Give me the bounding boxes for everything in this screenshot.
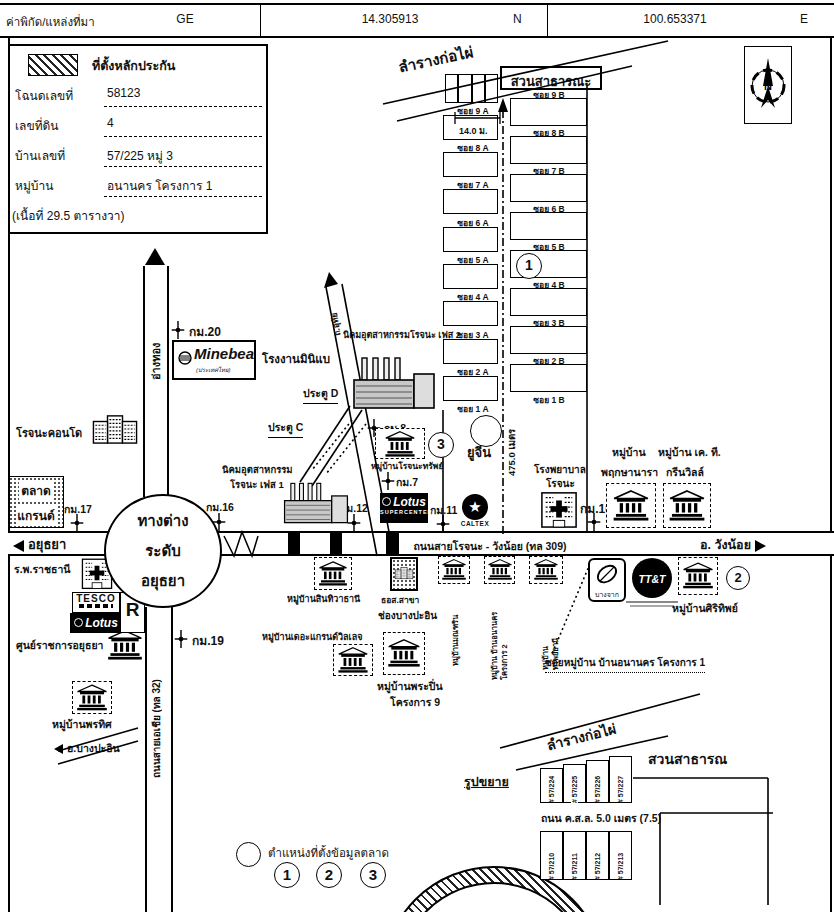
interchange-ellipse: ทางต่าง ระดับ อยุธยา (104, 494, 222, 608)
expand-plot-213: # 57/213 (609, 831, 632, 880)
branch-road-line-1 (58, 728, 138, 751)
lotus-logo-box: Lotus (70, 613, 122, 633)
interchange-line-2: ระดับ (106, 539, 220, 563)
branch-road-line-2 (58, 741, 138, 764)
expand-plot-210-label: # 57/210 (548, 833, 555, 880)
expand-plot-210: # 57/210 (540, 831, 563, 880)
expand-plot-226-label: # 57/226 (594, 762, 601, 803)
km10-marker-icon (587, 513, 601, 531)
rojanasap-bank-icon (382, 431, 418, 457)
ayutthaya-text: อยุธยา (28, 537, 66, 552)
expand-corner-line (660, 813, 773, 905)
angthong-road-label: อ่างทอง (147, 292, 165, 380)
km11-marker-icon (436, 515, 450, 533)
minebea-logo-box: Minebea (ประเทศไทย) (172, 340, 256, 380)
marker-legend-label: ตำแหน่งที่ตั้งข้อมูลตลาด (268, 844, 389, 862)
expand-plot-211-label: # 57/211 (571, 833, 578, 880)
canal-top-line-1 (383, 41, 668, 104)
montharin-bank-icon (441, 559, 467, 580)
ktgreenville-bank-icon (668, 490, 706, 521)
km17-marker-icon (70, 514, 84, 532)
road-pier-2 (330, 533, 342, 554)
wangnoi-direction-label: อ. วังน้อย (700, 535, 766, 555)
road-pier-3 (386, 533, 399, 554)
tesco-logo-box: TESCO (72, 592, 120, 613)
expand-plot-227-label: # 57/227 (617, 758, 624, 803)
asia-road-label: ถนนสายเอเชีย (ทล 32) (149, 652, 166, 778)
lotus-text-2: Lotus (85, 616, 118, 630)
subject-plot-expand: # 57/225 (563, 764, 586, 803)
footer-badge-1: 1 (274, 862, 300, 888)
gate-dotted-1 (312, 420, 352, 470)
bangchak-text: บางจาก (590, 589, 624, 600)
bangchak-leaf-icon (593, 562, 621, 588)
ttt-logo: TT&T (632, 558, 672, 598)
phase1-factory-icon (283, 472, 349, 534)
phase2-length-label: 475.0 เมตร (504, 402, 519, 476)
marker-badge-1: 1 (516, 253, 542, 279)
km12-marker-icon (347, 514, 361, 532)
phase2-road-arrow (498, 98, 508, 112)
expand-plot-225-label: # 57/225 (571, 766, 578, 803)
gate-d-label: ประตู D (303, 385, 338, 404)
road-break-zigzag (224, 532, 258, 556)
rojanasap-village-label: หมู่บ้านโรจนะทรัพย์ (371, 459, 443, 473)
expand-plot-211: # 57/211 (563, 831, 586, 880)
pruksanara-bank-icon (612, 490, 650, 521)
eugene-label: ยูจีน (467, 442, 491, 463)
bangchak-logo: บางจาก (588, 558, 626, 602)
wangnoi-text: อ. วังน้อย (700, 538, 751, 552)
expand-plot-226: # 57/226 (586, 760, 609, 803)
lotus-flower-icon (382, 497, 391, 506)
caltex-logo: ★ CALTEX (458, 494, 492, 532)
expand-plot-212-label: # 57/212 (594, 833, 601, 880)
minebea-logo-text: Minebea (194, 345, 254, 362)
gate-c-label: ประตู C (268, 419, 303, 438)
supercenter-text: SUPERCENTER (380, 509, 428, 515)
caltex-text: CALTEX (458, 520, 492, 527)
expand-plot-212: # 57/212 (586, 831, 609, 880)
road-pier-1 (288, 533, 300, 554)
expand-plot-224: # 57/224 (540, 768, 563, 803)
factory-connector-1 (300, 406, 350, 482)
lotus-word: Lotus (393, 495, 426, 509)
interchange-line-1: ทางต่าง (106, 509, 220, 533)
ttt-text: TT&T (639, 573, 666, 585)
ghb-branch-icon (394, 562, 414, 584)
marker-badge-2: 2 (726, 566, 750, 590)
km20-marker-icon (171, 321, 185, 339)
ayutthaya-direction-label: อยุธยา (13, 534, 66, 555)
caltex-star-icon: ★ (468, 498, 481, 515)
rojana-hospital-icon (540, 489, 578, 529)
lotus-supercenter-box: Lotus SUPERCENTER (380, 493, 428, 523)
phase2-factory-icon (352, 356, 436, 410)
sinthiwathani-bank-icon (318, 561, 348, 586)
interchange-line-3: อยุธยา (106, 569, 220, 593)
uthai-road-arrow (324, 272, 338, 288)
rojana-road-label: ถนนสายโรจนะ - วังน้อย (ทล 309) (402, 535, 578, 554)
expand-plot-213-label: # 57/213 (617, 833, 624, 880)
lotus-supercenter-text: Lotus (380, 495, 428, 509)
left-arrow-icon (13, 540, 24, 552)
expand-canal-line-1 (500, 694, 700, 748)
right-arrow-icon (755, 540, 766, 552)
map-document: ค่าพิกัด/แหล่งที่มา GE 14.305913 N 100.6… (0, 0, 834, 912)
expand-road-label: ถนน ค.ส.ล. 5.0 เมตร (7.5) (541, 810, 661, 827)
tesco-text: TESCO (73, 593, 119, 604)
lotus-flower-icon-2 (74, 618, 83, 627)
caltex-star-disc: ★ (462, 494, 488, 520)
minebea-logo-icon (178, 351, 192, 365)
minebea-logo-subtext: (ประเทศไทย) (196, 365, 231, 375)
width-measure-line (455, 112, 500, 124)
marker-legend-circle (236, 842, 261, 867)
sirithip-bank-icon (682, 562, 714, 589)
expand-plot-227: # 57/227 (609, 756, 632, 803)
sapthani-bank-icon (533, 559, 559, 580)
expand-plot-224-label: # 57/224 (548, 770, 555, 803)
footer-badge-2: 2 (316, 862, 342, 888)
anakorn2-bank-icon (487, 559, 513, 580)
tesco-stripes (79, 604, 113, 608)
footer-badge-3: 3 (360, 862, 386, 888)
marker-badge-3: 3 (428, 432, 454, 458)
expand-park-line (633, 778, 768, 905)
